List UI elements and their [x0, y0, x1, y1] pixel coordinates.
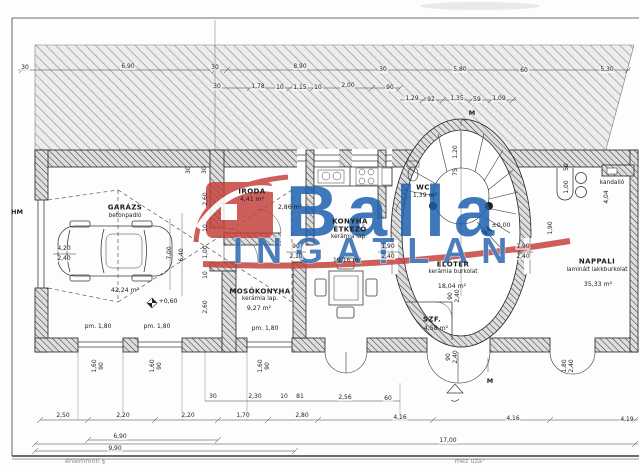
area-label: 42,24 m²	[110, 288, 140, 294]
dim-label: 30	[186, 165, 192, 175]
footer-label: mez uza°	[454, 458, 487, 465]
room-label: KONYHA	[331, 219, 369, 226]
dim-label: 1,90	[515, 244, 530, 250]
dim-label: 50	[564, 162, 570, 172]
dim-label: 90	[99, 361, 105, 371]
dim-label: 2,20	[180, 413, 195, 419]
sub-label: kerámia burkolat	[427, 270, 478, 276]
sub-label: kandalló	[599, 181, 625, 187]
dim-label: 6,40	[179, 247, 185, 262]
dim-label: 90	[265, 361, 271, 371]
dim-label: 30	[210, 65, 220, 71]
dim-label: 4,16	[505, 416, 520, 422]
dim-label: 2,50	[55, 413, 70, 419]
dim-label: 10	[313, 85, 323, 91]
dim-label: 10	[279, 394, 289, 400]
dim-label: 90	[385, 85, 395, 91]
room-label: ÉTKEZŐ	[332, 227, 367, 234]
sub-label: kerámia lap.	[241, 297, 279, 303]
dim-label: 30	[20, 65, 30, 71]
dim-label: 1,15	[292, 85, 307, 91]
dim-label: 2,40	[380, 254, 395, 260]
dim-label: 2,20	[115, 413, 130, 419]
dim-label: 1,35	[449, 96, 464, 102]
dim-label: 4,04	[604, 189, 610, 204]
footer-label: énlemmon §	[64, 458, 106, 465]
dim-label: 2,60	[203, 191, 209, 206]
dim-label: 2,10	[288, 254, 303, 260]
dim-label: 2,40	[56, 256, 71, 262]
dim-label: 60	[519, 68, 529, 74]
dim-label: 2,40	[515, 254, 530, 260]
dim-label: 2,00	[340, 83, 355, 89]
dim-label: 59	[472, 97, 482, 103]
dim-label: 2,56	[337, 395, 352, 401]
area-label: 9,27 m²	[246, 306, 272, 312]
room-label: ELŐTÉR	[436, 262, 471, 269]
area-label: 4,58 m²	[423, 326, 449, 332]
room-label: IRODA	[237, 189, 266, 196]
dim-label: 9,90	[107, 446, 122, 452]
dim-label: 2,60	[203, 299, 209, 314]
dim-label: 6,90	[120, 64, 135, 70]
note-label: HM	[10, 209, 24, 216]
sub-label: betonpadló	[108, 214, 143, 220]
dim-label: 1,29	[404, 96, 419, 102]
sub-label: kerámia lap.	[330, 235, 368, 241]
dim-label: 1,90	[548, 220, 554, 235]
dim-label: 4,19	[619, 417, 634, 423]
dim-label: 2,40	[455, 288, 461, 303]
floor-plan-scan: Balla INGATLAN 306,90308,90305,80605,303…	[0, 0, 640, 465]
dim-label: 90	[291, 244, 301, 250]
dim-label: 2,30	[247, 394, 262, 400]
dim-label: 8,90	[292, 64, 307, 70]
dim-label: 5,30	[599, 67, 614, 73]
dim-label: 1,90	[380, 244, 395, 250]
dim-label: 90	[157, 361, 163, 371]
plan-annotation-layer: 306,90308,90305,80605,30301,78101,15102,…	[0, 0, 640, 465]
dim-label: 30	[202, 165, 208, 175]
dim-label: 1,78	[250, 84, 265, 90]
area-label: +0,60	[158, 299, 179, 305]
area-label: 19,16 m²	[332, 258, 362, 264]
dim-label: 6,90	[112, 434, 127, 440]
room-label: NAPPALI	[578, 259, 616, 266]
note-label: M	[486, 378, 494, 385]
area-label: 35,33 m²	[583, 282, 613, 288]
dim-label: pm. 1,80	[251, 326, 280, 332]
area-label: 18,04 m²	[437, 284, 467, 290]
dim-label: 60	[383, 396, 393, 402]
dim-label: 10	[203, 270, 209, 280]
area-label: 2,86 m²	[277, 205, 303, 211]
sub-label: laminált lakkburkolat	[565, 268, 628, 274]
area-label: ±0,00	[491, 223, 512, 229]
dim-label: 10	[275, 85, 285, 91]
area-label: 1,39 m²	[412, 193, 438, 199]
room-label: SZF.	[422, 317, 442, 324]
dim-label: 4,16	[392, 415, 407, 421]
dim-label: 2,40	[453, 349, 459, 364]
dim-label: 1,00	[203, 244, 209, 259]
dim-label: 1,70	[235, 413, 250, 419]
dim-label: 4,20	[56, 246, 71, 252]
dim-label: 2,80	[294, 413, 309, 419]
dim-label: 92	[426, 97, 436, 103]
dim-label: 1,09	[491, 96, 506, 102]
dim-label: 81	[295, 394, 305, 400]
dim-label: 17,00	[438, 438, 457, 444]
dim-label: pm. 1,80	[84, 324, 113, 330]
room-label: WC	[415, 185, 431, 192]
dim-label: 5,80	[452, 67, 467, 73]
dim-label: pm. 1,80	[143, 324, 172, 330]
dim-label: 2,40	[569, 358, 575, 373]
dim-label: 1,00	[564, 179, 570, 194]
room-label: MOSÓKONYHA	[228, 289, 291, 296]
dim-label: 7,00	[167, 245, 173, 260]
dim-label: 30	[212, 84, 222, 90]
dim-label: 30	[208, 394, 218, 400]
note-label: M	[468, 110, 476, 117]
dim-label: 1,20	[453, 144, 459, 159]
room-label: GARÁZS	[107, 205, 144, 212]
dim-label: 75	[453, 167, 459, 177]
dim-label: 10	[203, 223, 209, 233]
dim-label: 30	[378, 67, 388, 73]
area-label: 4,41 m²	[239, 197, 265, 203]
